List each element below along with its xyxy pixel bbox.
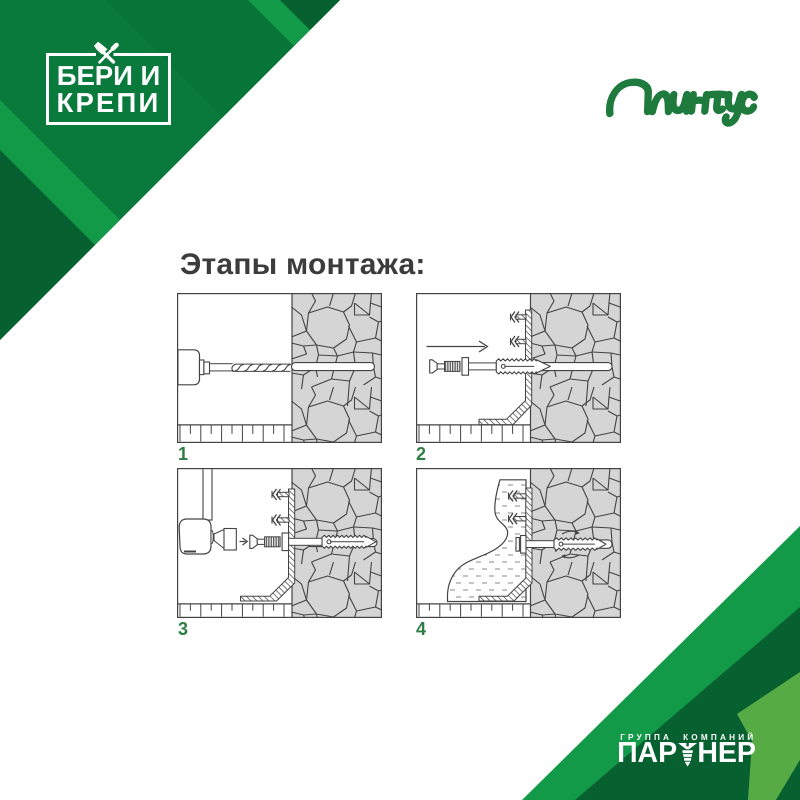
svg-text:КРЕПИ: КРЕПИ: [56, 87, 160, 118]
